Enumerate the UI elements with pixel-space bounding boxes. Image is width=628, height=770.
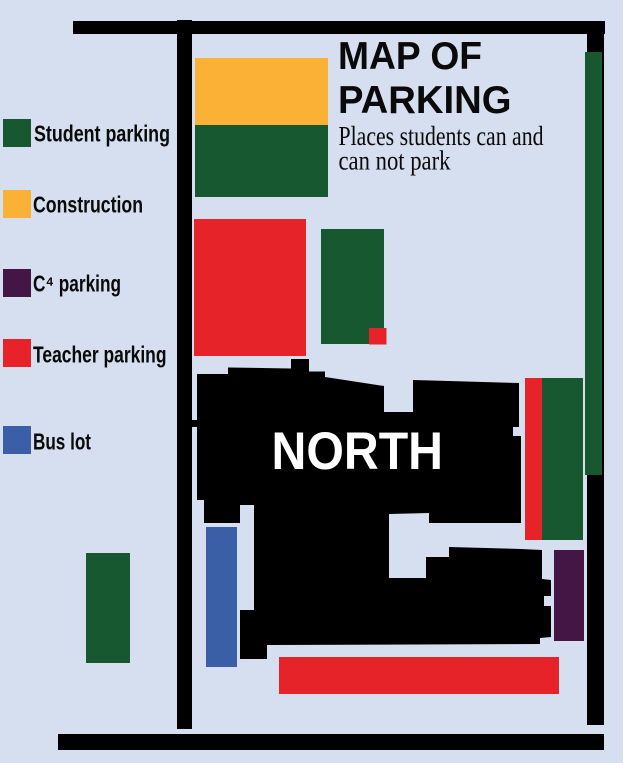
svg-text:can not park: can not park: [339, 145, 451, 175]
svg-text:Bus lot: Bus lot: [33, 429, 91, 455]
svg-text:MAP OF: MAP OF: [338, 35, 482, 78]
svg-text:NORTH: NORTH: [272, 422, 444, 481]
svg-text:C⁴ parking: C⁴ parking: [33, 271, 121, 297]
svg-text:Construction: Construction: [33, 192, 143, 218]
svg-text:Student parking: Student parking: [34, 121, 170, 147]
svg-text:Teacher parking: Teacher parking: [33, 342, 167, 368]
svg-text:PARKING: PARKING: [338, 79, 512, 122]
